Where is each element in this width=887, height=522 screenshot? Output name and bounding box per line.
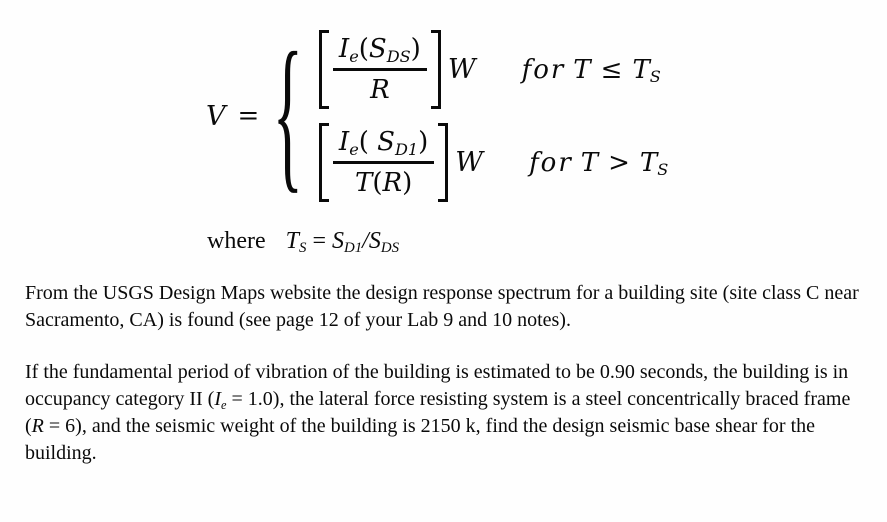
subscript-S: S — [650, 67, 661, 86]
var-TS: T — [286, 228, 299, 254]
word-for: for — [529, 148, 573, 178]
right-square-bracket — [431, 30, 441, 109]
close-paren: ) — [418, 127, 428, 157]
word-for: for — [522, 55, 566, 85]
subscript-DS: DS — [381, 240, 399, 256]
var-W: W — [455, 147, 483, 178]
var-R: R — [382, 168, 402, 198]
fraction-numerator: Ie( SD1) — [333, 126, 434, 161]
left-curly-brace: { — [273, 30, 303, 202]
subscript-D1: D1 — [395, 140, 418, 159]
close-paren: ) — [402, 168, 412, 198]
fraction: Ie( SD1) T(R) — [331, 126, 436, 199]
equation-lhs: V — [206, 101, 226, 132]
fraction-denominator: R — [364, 71, 396, 106]
problem-statement: From the USGS Design Maps website the de… — [25, 280, 863, 467]
case-condition: forT≤TS — [522, 55, 661, 85]
subscript-e: e — [349, 140, 359, 159]
var-SDS: S — [369, 34, 387, 64]
subscript-D1: D1 — [344, 240, 362, 256]
var-T: T — [581, 148, 598, 178]
var-SD1: S — [377, 127, 395, 157]
fraction: Ie(SDS) R — [331, 33, 429, 106]
close-paren: ) — [411, 34, 421, 64]
var-W: W — [448, 54, 476, 85]
var-T: T — [355, 168, 372, 198]
right-square-bracket — [438, 123, 448, 202]
var-Ie: I — [339, 34, 349, 64]
case-row-long-period: Ie( SD1) T(R) W forT>TS — [319, 123, 668, 202]
var-SDS: S — [369, 228, 381, 254]
equation-cases: Ie(SDS) R W forT≤TS Ie( SD1) T(R) W fo — [319, 30, 668, 202]
divide-slash: / — [362, 228, 369, 254]
var-R: R — [32, 415, 44, 437]
left-square-bracket — [319, 30, 329, 109]
word-where: where — [207, 228, 266, 255]
subscript-S: S — [299, 240, 306, 256]
problem-text-3: = 6), and the seismic weight of the buil… — [25, 415, 815, 464]
var-T: T — [573, 55, 590, 85]
var-Ie: I — [339, 127, 349, 157]
equals-sign: = — [306, 228, 332, 254]
case-row-short-period: Ie(SDS) R W forT≤TS — [319, 30, 668, 109]
var-SD1: S — [332, 228, 344, 254]
var-Ie: I — [214, 388, 221, 410]
var-R: R — [370, 75, 390, 105]
operator-gt: > — [608, 148, 630, 178]
case-condition: forT>TS — [529, 148, 668, 178]
equals-sign: = — [238, 101, 260, 131]
var-TS: T — [632, 55, 649, 85]
subscript-DS: DS — [387, 47, 411, 66]
left-square-bracket — [319, 123, 329, 202]
Ts-definition: TS = SD1/SDS — [286, 228, 399, 255]
var-TS: T — [640, 148, 657, 178]
open-paren: ( — [359, 34, 369, 64]
paragraph-problem: If the fundamental period of vibration o… — [25, 359, 863, 467]
subscript-e: e — [221, 398, 227, 412]
subscript-e: e — [349, 47, 359, 66]
subscript-S: S — [657, 160, 668, 179]
fraction-numerator: Ie(SDS) — [333, 33, 427, 68]
operator-lte: ≤ — [601, 55, 623, 85]
where-definition-line: where TS = SD1/SDS — [207, 228, 887, 255]
fraction-denominator: T(R) — [349, 164, 418, 199]
piecewise-base-shear-equation: V = { Ie(SDS) R W forT≤TS Ie( SD1) — [206, 30, 887, 202]
open-paren: ( — [359, 127, 377, 157]
bracketed-fraction: Ie(SDS) R — [319, 30, 441, 109]
paragraph-design-maps: From the USGS Design Maps website the de… — [25, 280, 863, 334]
open-paren: ( — [372, 168, 382, 198]
bracketed-fraction: Ie( SD1) T(R) — [319, 123, 448, 202]
